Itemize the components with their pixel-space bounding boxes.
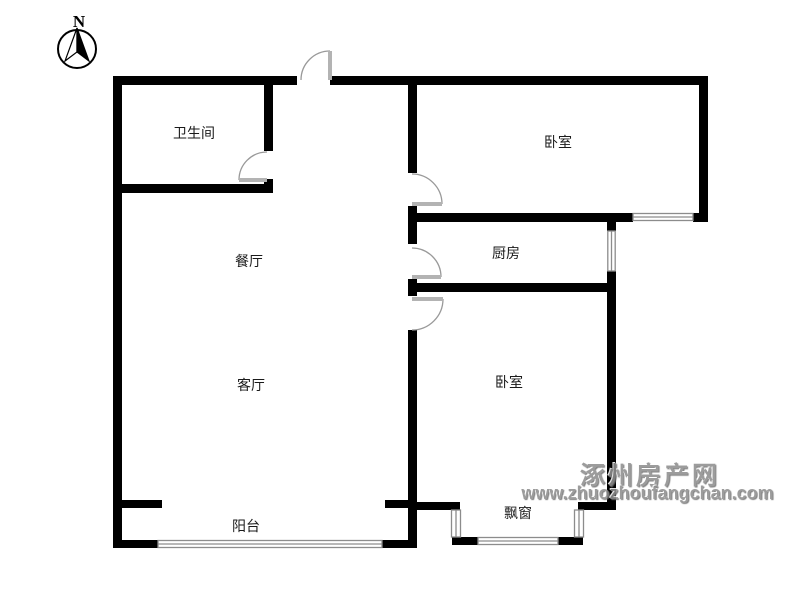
room-label-kitchen: 厨房 <box>492 245 520 261</box>
window-bay-bottom <box>478 538 558 545</box>
walls <box>113 76 708 548</box>
door-kitchen <box>412 248 441 277</box>
room-label-bathroom: 卫生间 <box>173 125 215 141</box>
door-bedroom-top <box>412 174 442 204</box>
room-label-dining: 餐厅 <box>235 253 263 269</box>
window-bay-left <box>452 510 461 537</box>
door-bedroom-bottom <box>412 299 443 330</box>
window-kitchen <box>608 231 615 271</box>
room-label-bedroom-bottom: 卧室 <box>495 374 523 390</box>
room-label-bay-window: 飘窗 <box>504 505 532 521</box>
window-balcony <box>158 541 382 548</box>
door-bathroom <box>239 152 267 180</box>
compass-north-label: N <box>73 12 86 31</box>
room-label-living: 客厅 <box>237 377 265 393</box>
window-bay-right <box>575 510 584 537</box>
north-arrow-icon: N <box>58 12 96 68</box>
floor-plan-drawing: N 卫生间 卧室 餐厅 厨房 客厅 卧室 阳台 飘窗 <box>0 0 800 600</box>
door-entry <box>301 51 330 80</box>
window-bedroom-top <box>633 214 693 221</box>
floor-plan-canvas: N 卫生间 卧室 餐厅 厨房 客厅 卧室 阳台 飘窗 涿州房产网 www.zhu… <box>0 0 800 600</box>
room-label-bedroom-top: 卧室 <box>544 134 572 150</box>
room-label-balcony: 阳台 <box>232 518 260 534</box>
